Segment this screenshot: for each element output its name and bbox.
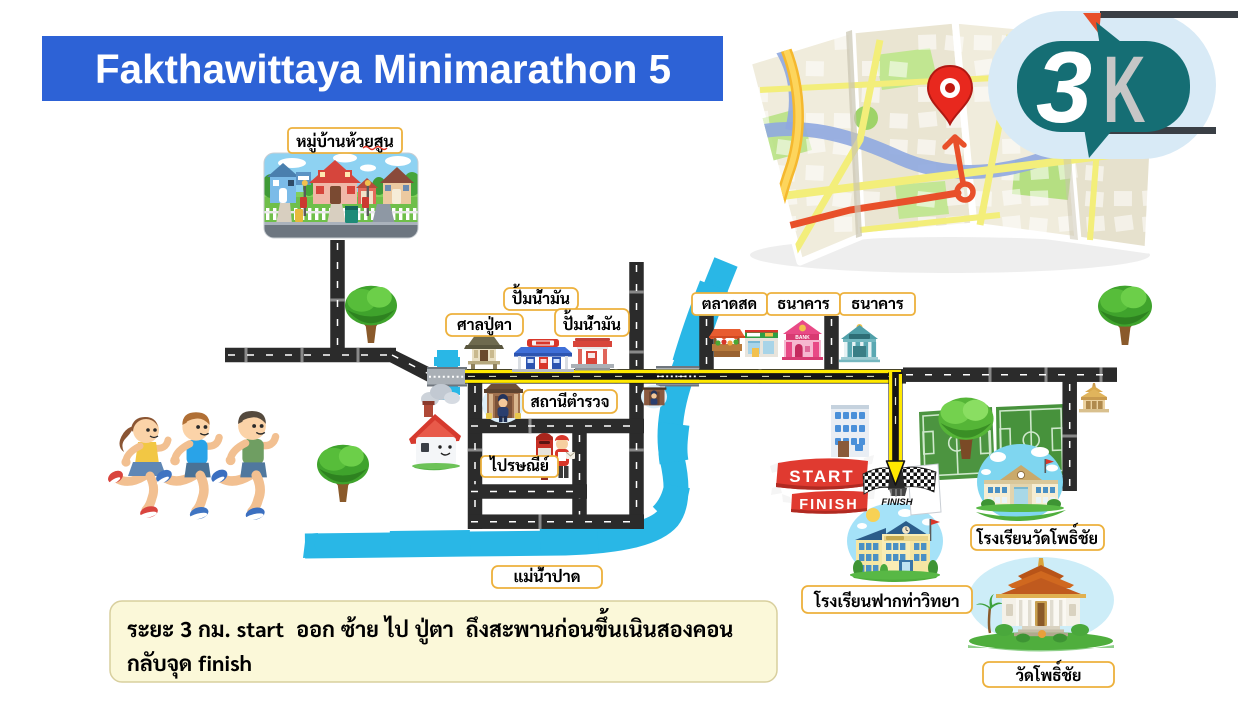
svg-text:3: 3: [1036, 32, 1092, 144]
svg-text:FINISH: FINISH: [881, 497, 913, 508]
svg-text:Fakthawittaya Minimarathon 5: Fakthawittaya Minimarathon 5: [95, 46, 671, 92]
svg-text:FINISH: FINISH: [799, 497, 859, 513]
svg-text:START: START: [789, 467, 854, 486]
svg-text:K: K: [1103, 35, 1146, 142]
